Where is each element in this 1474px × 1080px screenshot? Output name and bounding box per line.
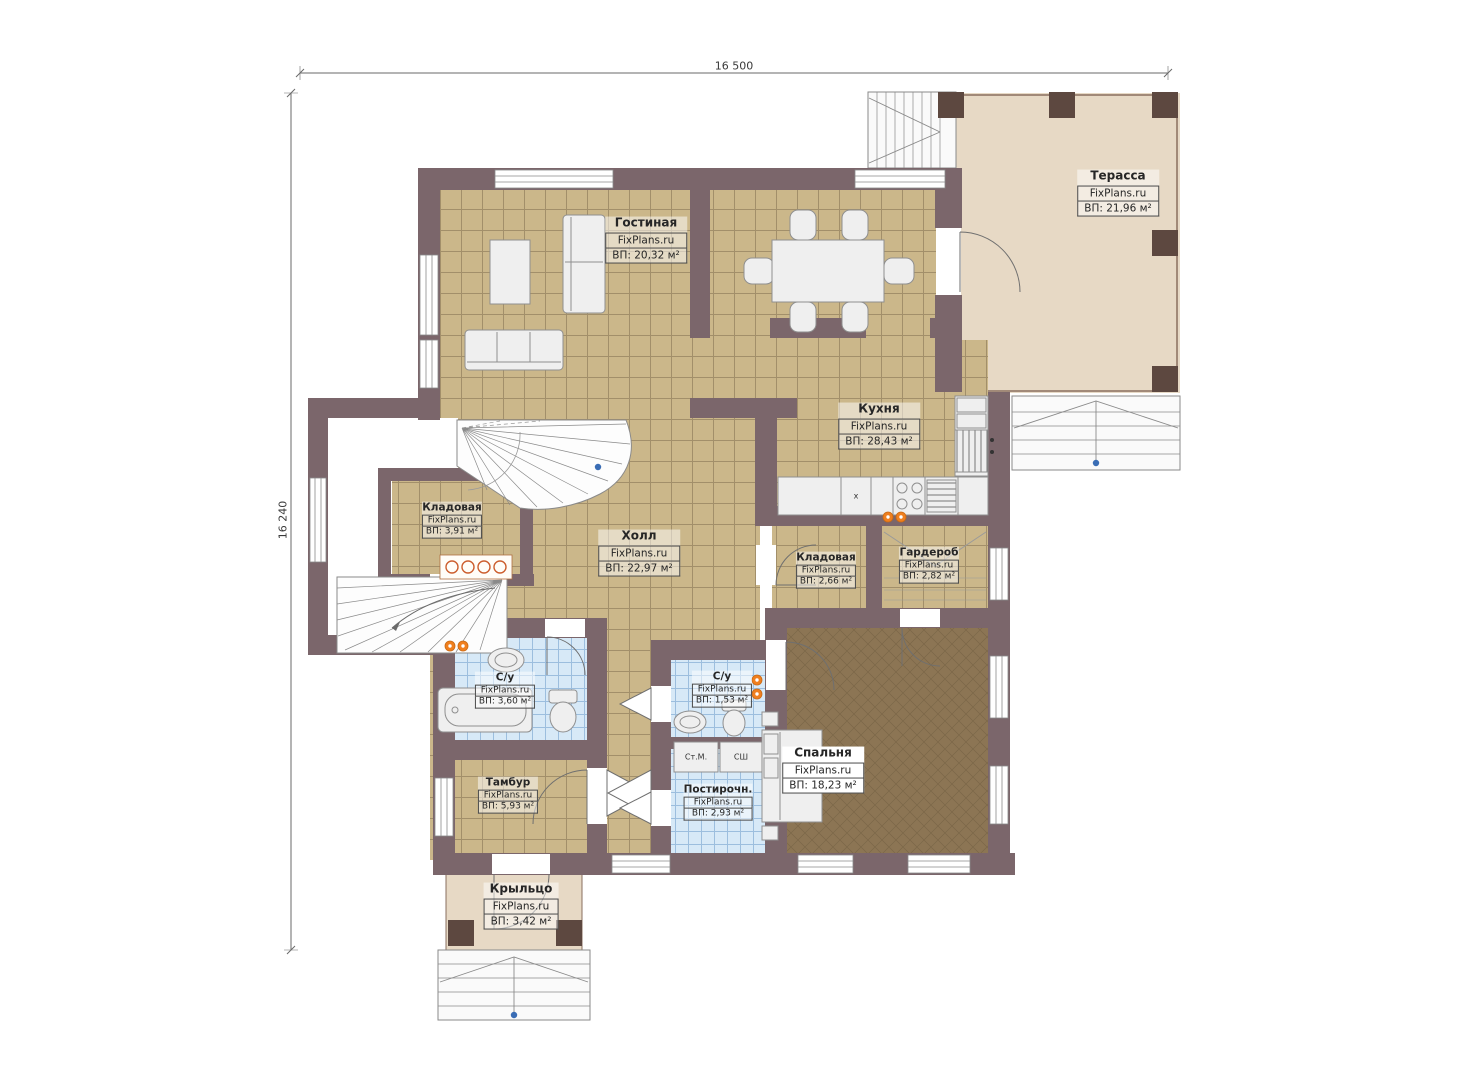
room-name: Спальня	[782, 747, 864, 761]
room-area: ВП: 2,66 м²	[796, 577, 856, 588]
room-name: Холл	[598, 530, 680, 544]
room-name: Кладовая	[422, 502, 482, 514]
room-area: ВП: 18,23 м²	[782, 778, 864, 793]
room-name: С/у	[692, 671, 752, 683]
room-label-hall: Холл FixPlans.ru ВП: 22,97 м²	[598, 530, 680, 577]
kitchen-sink	[927, 480, 956, 512]
room-label-living: Гостиная FixPlans.ru ВП: 20,32 м²	[605, 217, 687, 264]
room-name: Гостиная	[605, 217, 687, 231]
dryer-label: СШ	[734, 753, 748, 762]
room-area: ВП: 3,60 м²	[475, 697, 535, 708]
porch-steps	[438, 950, 590, 1020]
room-name: Крыльцо	[484, 883, 559, 897]
watermark: FixPlans.ru	[478, 790, 538, 802]
floor-plan-page: 16 500 16 240 Терасса FixPlans.ru ВП: 21…	[0, 0, 1474, 1080]
room-label-porch: Крыльцо FixPlans.ru ВП: 3,42 м²	[484, 883, 559, 930]
room-name: Кладовая	[796, 552, 856, 564]
room-label-vestibule: Тамбур FixPlans.ru ВП: 5,93 м²	[478, 777, 538, 814]
watermark: FixPlans.ru	[1077, 185, 1159, 201]
kitchen-marker-label: x	[854, 492, 859, 501]
room-area: ВП: 2,82 м²	[899, 572, 959, 583]
kitchen-counter-bottom	[778, 477, 988, 515]
room-area: ВП: 1,53 м²	[692, 696, 752, 707]
room-area: ВП: 20,32 м²	[605, 248, 687, 263]
watermark: FixPlans.ru	[684, 797, 753, 809]
room-name: Гардероб	[899, 547, 959, 559]
watermark: FixPlans.ru	[782, 762, 864, 778]
room-label-laundry: Постирочн. FixPlans.ru ВП: 2,93 м²	[684, 784, 753, 821]
toilet-1	[549, 690, 577, 732]
room-area: ВП: 28,43 м²	[838, 434, 920, 449]
washbasin-2	[674, 711, 706, 733]
room-area: ВП: 2,93 м²	[684, 809, 753, 820]
room-name: Постирочн.	[684, 784, 753, 796]
watermark: FixPlans.ru	[475, 685, 535, 697]
sofa	[465, 330, 563, 370]
room-label-bathroom1: С/у FixPlans.ru ВП: 3,60 м²	[475, 672, 535, 709]
kitchen-counter-right	[955, 396, 994, 476]
watermark: FixPlans.ru	[484, 898, 559, 914]
room-name: Терасса	[1077, 170, 1159, 184]
room-area: ВП: 3,91 м²	[422, 527, 482, 538]
room-label-wardrobe: Гардероб FixPlans.ru ВП: 2,82 м²	[899, 547, 959, 584]
room-label-storage2: Кладовая FixPlans.ru ВП: 2,66 м²	[796, 552, 856, 589]
hanger-row	[440, 555, 512, 579]
room-area: ВП: 5,93 м²	[478, 802, 538, 813]
room-label-storage1: Кладовая FixPlans.ru ВП: 3,91 м²	[422, 502, 482, 539]
room-name: Тамбур	[478, 777, 538, 789]
dimension-height-label: 16 240	[277, 496, 290, 545]
room-area: ВП: 22,97 м²	[598, 561, 680, 576]
watermark: FixPlans.ru	[422, 515, 482, 527]
watermark: FixPlans.ru	[598, 545, 680, 561]
floor-plan-canvas	[0, 0, 1474, 1080]
coffee-table	[490, 240, 530, 304]
room-label-bedroom: Спальня FixPlans.ru ВП: 18,23 м²	[782, 747, 864, 794]
room-area: ВП: 3,42 м²	[484, 914, 559, 929]
watermark: FixPlans.ru	[692, 684, 752, 696]
room-label-kitchen: Кухня FixPlans.ru ВП: 28,43 м²	[838, 403, 920, 450]
washbasin-1	[488, 648, 524, 672]
room-area: ВП: 21,96 м²	[1077, 201, 1159, 216]
watermark: FixPlans.ru	[796, 565, 856, 577]
room-name: Кухня	[838, 403, 920, 417]
watermark: FixPlans.ru	[605, 232, 687, 248]
dimension-width-label: 16 500	[710, 60, 759, 73]
room-label-terrace: Терасса FixPlans.ru ВП: 21,96 м²	[1077, 170, 1159, 217]
watermark: FixPlans.ru	[899, 560, 959, 572]
terrace-side-steps	[1012, 396, 1180, 470]
couch	[563, 215, 605, 313]
washer-label: Ст.М.	[685, 753, 707, 762]
lower-stair	[337, 577, 507, 653]
room-label-bathroom2: С/у FixPlans.ru ВП: 1,53 м²	[692, 671, 752, 708]
watermark: FixPlans.ru	[838, 418, 920, 434]
room-name: С/у	[475, 672, 535, 684]
